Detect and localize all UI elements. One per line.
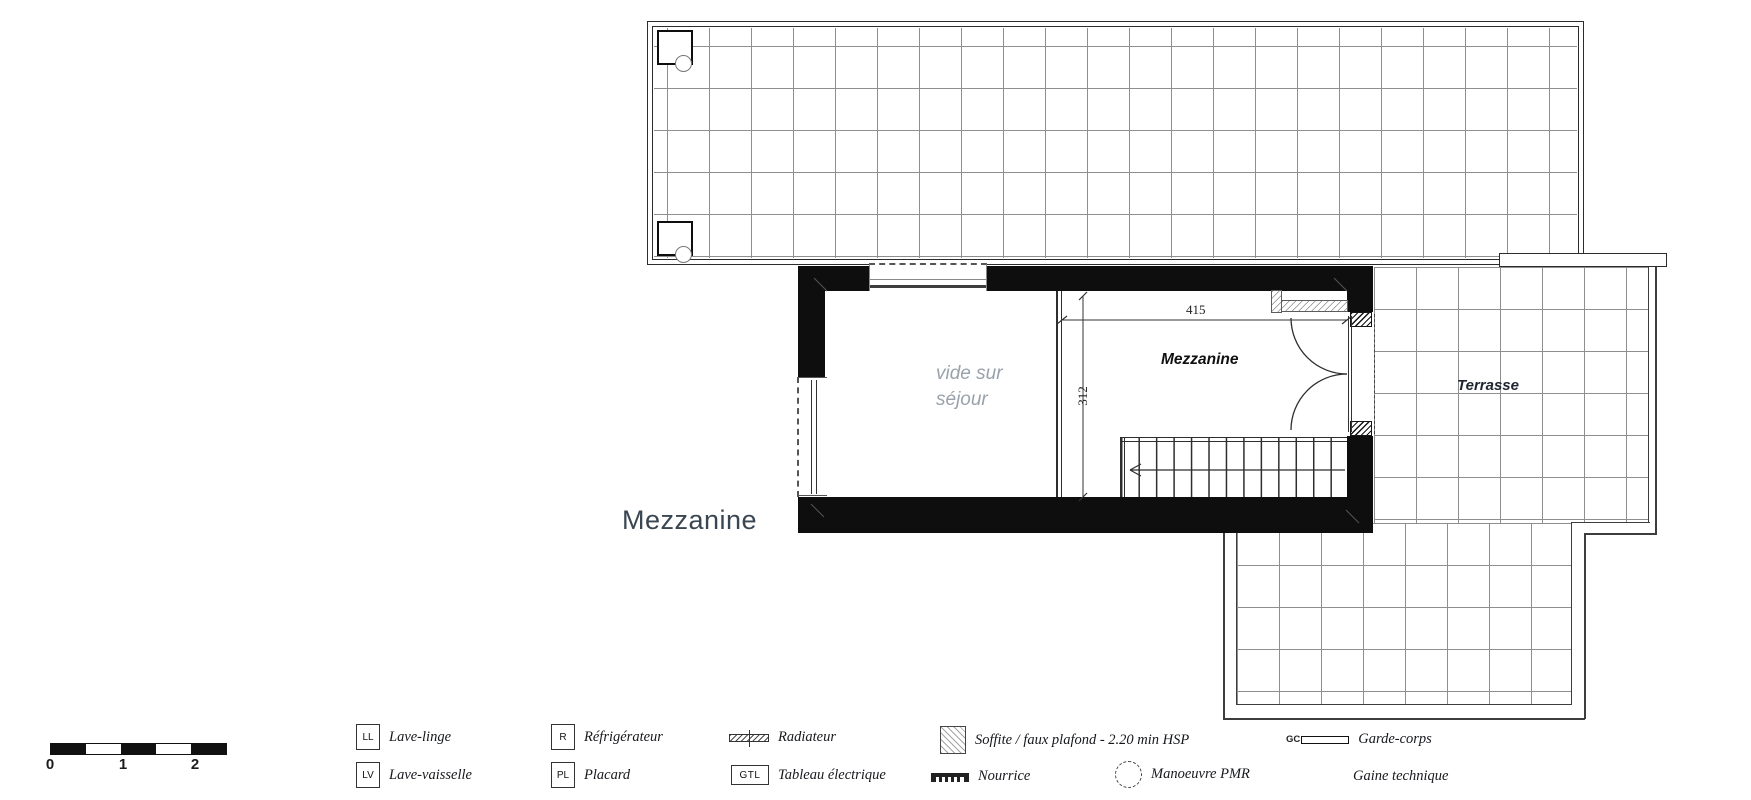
- legend-item-radiateur: Radiateur: [729, 729, 836, 746]
- legend-item-refrigerateur: R Réfrigérateur: [551, 724, 663, 750]
- roof-terrace: [647, 21, 1584, 265]
- scale-segment: [86, 744, 121, 754]
- window-left-cap-bottom: [799, 495, 827, 496]
- void-guardrail-line-2: [1061, 291, 1062, 497]
- scale-tick-1: 1: [116, 756, 130, 773]
- dimension-text-415: 415: [1186, 302, 1206, 318]
- roof-terrace-tiles: [654, 28, 1577, 258]
- window-left-glazing-2: [816, 380, 817, 494]
- legend-item-gaine-technique: Gaine technique: [1353, 768, 1448, 785]
- legend-item-lave-vaisselle: LV Lave-vaisselle: [356, 762, 472, 788]
- scale-tick-2: 2: [188, 756, 202, 773]
- terrasse-label: Terrasse: [1457, 377, 1519, 394]
- wall-bottom: [798, 497, 1373, 533]
- lave-linge-icon: LL: [356, 724, 380, 750]
- legend-item-nourrice: Nourrice: [931, 768, 1030, 785]
- void-label: vide surséjour: [936, 361, 1003, 413]
- terrace-lower-right-outer: [1584, 533, 1586, 719]
- door-jamb-top: [1350, 312, 1372, 327]
- window-left-cap-top: [799, 377, 827, 378]
- window-top-glazing-line: [870, 279, 986, 280]
- roof-drain-top-icon: [675, 55, 692, 72]
- legend-item-manoeuvre-pmr: Manoeuvre PMR: [1115, 761, 1250, 788]
- legend-item-tableau-electrique: GTL Tableau électrique: [731, 765, 886, 785]
- staircase: [1120, 437, 1347, 497]
- wall-right-upper: [1347, 266, 1373, 312]
- legend-item-soffite: Soffite / faux plafond - 2.20 min HSP: [940, 726, 1189, 754]
- void-label-line2: séjour: [936, 389, 988, 410]
- window-top: [869, 263, 987, 291]
- terrace-guard-bar: [1499, 253, 1667, 267]
- wall-right-lower: [1347, 436, 1373, 497]
- lave-vaisselle-icon: LV: [356, 762, 380, 788]
- wall-left: [798, 266, 825, 377]
- refrigerateur-icon: R: [551, 724, 575, 750]
- door-threshold-dashed: [1374, 314, 1376, 434]
- window-left-glazing-1: [811, 380, 812, 494]
- dimension-text-312: 312: [1075, 379, 1091, 413]
- soffit-hatch-horizontal: [1281, 300, 1348, 312]
- scale-bar: [50, 743, 227, 755]
- door-jamb-bottom: [1350, 421, 1372, 436]
- placard-icon: PL: [551, 762, 575, 788]
- terrace-left-inner: [1236, 533, 1237, 705]
- radiator-tick: [749, 730, 750, 747]
- terrace-edge-right-outer: [1655, 267, 1657, 534]
- window-top-sill-line: [870, 285, 986, 288]
- void-guardrail-line-1: [1056, 291, 1058, 497]
- roof-drain-bottom-icon: [675, 246, 692, 263]
- terrace-bottom-inner: [1237, 704, 1572, 705]
- scale-segment: [156, 744, 191, 754]
- legend-item-lave-linge: LL Lave-linge: [356, 724, 451, 750]
- floor-plan-canvas: vide surséjour Mezzanine Terrasse 415 31…: [0, 0, 1751, 800]
- scale-segment: [121, 744, 156, 754]
- scale-segment: [191, 744, 226, 754]
- terrace-tiles-lower: [1237, 523, 1571, 704]
- terrace-edge-right-inner: [1648, 267, 1649, 523]
- staircase-left-inner-line: [1124, 437, 1125, 497]
- legend-item-garde-corps: GC Garde-corps: [1286, 731, 1432, 748]
- terrace-tiles-upper: [1374, 267, 1649, 523]
- void-label-line1: vide sur: [936, 363, 1003, 384]
- wall-top-right: [987, 266, 1373, 291]
- floor-title: Mezzanine: [622, 505, 757, 536]
- scale-segment: [51, 744, 86, 754]
- radiator-icon: [729, 734, 769, 742]
- staircase-top-inner-line: [1120, 441, 1347, 442]
- mezzanine-room-label: Mezzanine: [1161, 351, 1239, 369]
- guardrail-bar: [1301, 736, 1349, 744]
- manifold-icon: [931, 770, 969, 784]
- guardrail-icon: GC: [1286, 734, 1349, 745]
- terrace-left-outer: [1223, 533, 1225, 719]
- terrace-step-inner: [1572, 522, 1650, 523]
- legend-item-placard: PL Placard: [551, 762, 630, 788]
- scale-tick-0: 0: [43, 756, 57, 773]
- terrace-step-outer: [1584, 533, 1657, 535]
- terrace-lower-right-inner: [1571, 522, 1572, 705]
- gtl-icon: GTL: [731, 765, 769, 785]
- terrace-bottom-outer: [1223, 718, 1585, 720]
- roof-terrace-inner-border: [652, 26, 1579, 260]
- window-left: [797, 377, 825, 497]
- soffit-hatch-icon: [940, 726, 966, 754]
- pmr-circle-icon: [1115, 761, 1142, 788]
